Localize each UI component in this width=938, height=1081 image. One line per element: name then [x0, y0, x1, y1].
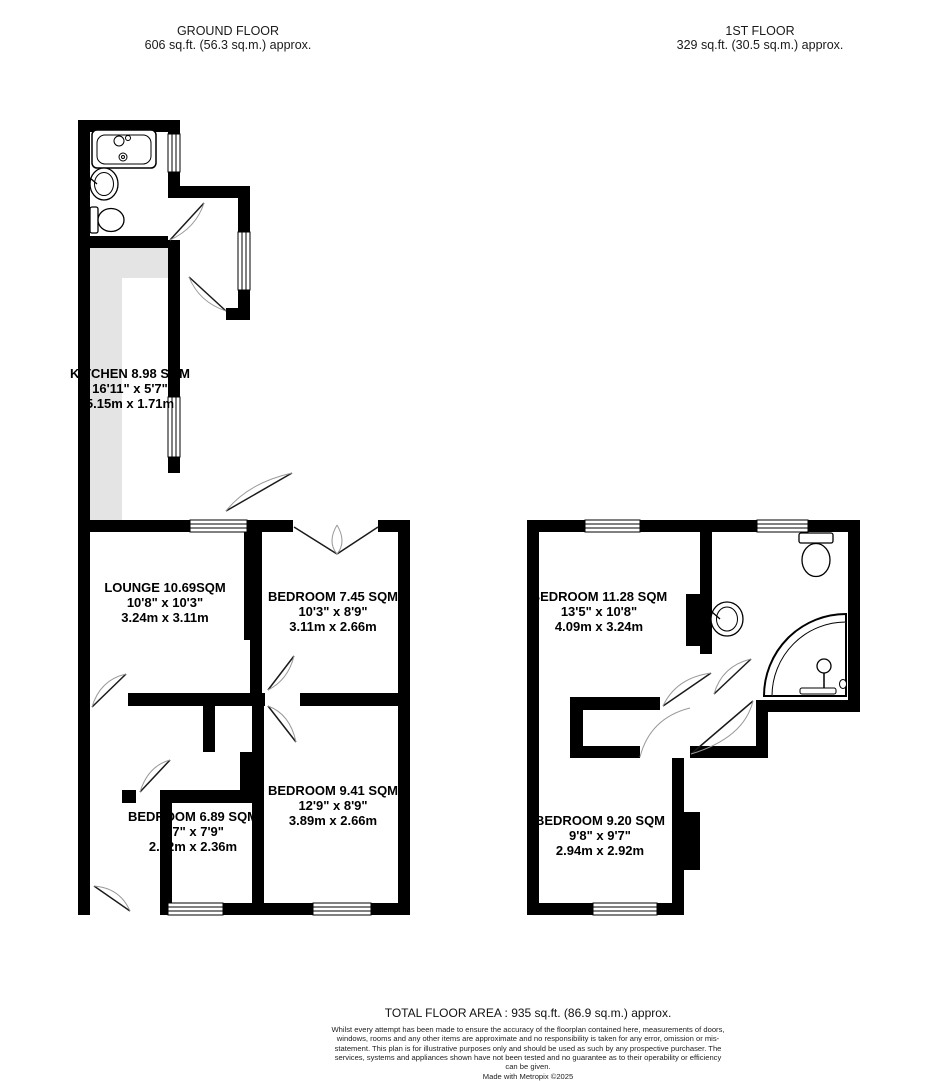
total-floor-area: TOTAL FLOOR AREA : 935 sq.ft. (86.9 sq.m… [308, 1006, 748, 1020]
room-label-lounge: LOUNGE 10.69SQM 10'8" x 10'3" 3.24m x 3.… [75, 580, 255, 625]
bathtub-icon [92, 130, 156, 168]
first-floor-title: 1ST FLOOR [660, 24, 860, 38]
window [190, 520, 247, 532]
room-label-bedroom-745: BEDROOM 7.45 SQM 10'3" x 8'9" 3.11m x 2.… [243, 589, 423, 634]
first-floor-area: 329 sq.ft. (30.5 sq.m.) approx. [660, 38, 860, 52]
room-label-kitchen: KITCHEN 8.98 SQM 16'11" x 5'7" 5.15m x 1… [40, 366, 220, 411]
disclaimer-text: Whilst every attempt has been made to en… [330, 1025, 726, 1071]
room-label-bedroom-689: BEDROOM 6.89 SQM 9'7" x 7'9" 2.92m x 2.3… [103, 809, 283, 854]
room-label-bedroom-1128: BEDROOM 11.28 SQM 13'5" x 10'8" 4.09m x … [507, 589, 691, 634]
window [238, 232, 250, 290]
floorplan-page: { "floors": { "ground": { "title": "GROU… [0, 0, 938, 1080]
window [593, 903, 657, 915]
window [313, 903, 371, 915]
floorplan-canvas [0, 0, 938, 1080]
toilet-icon [90, 207, 124, 233]
sink-icon [90, 168, 118, 200]
ground-floor-area: 606 sq.ft. (56.3 sq.m.) approx. [128, 38, 328, 52]
ground-floor-header: GROUND FLOOR 606 sq.ft. (56.3 sq.m.) app… [128, 24, 328, 52]
sink-icon [711, 602, 743, 636]
ground-floor-title: GROUND FLOOR [128, 24, 328, 38]
window [757, 520, 808, 532]
window [168, 903, 223, 915]
walls [78, 120, 860, 915]
first-floor-header: 1ST FLOOR 329 sq.ft. (30.5 sq.m.) approx… [660, 24, 860, 52]
footer: TOTAL FLOOR AREA : 935 sq.ft. (86.9 sq.m… [308, 1006, 748, 1081]
window [585, 520, 640, 532]
shower-icon [764, 614, 847, 696]
room-label-bedroom-920: BEDROOM 9.20 SQM 9'8" x 9'7" 2.94m x 2.9… [510, 813, 690, 858]
window [168, 134, 180, 172]
toilet-icon [799, 533, 833, 577]
